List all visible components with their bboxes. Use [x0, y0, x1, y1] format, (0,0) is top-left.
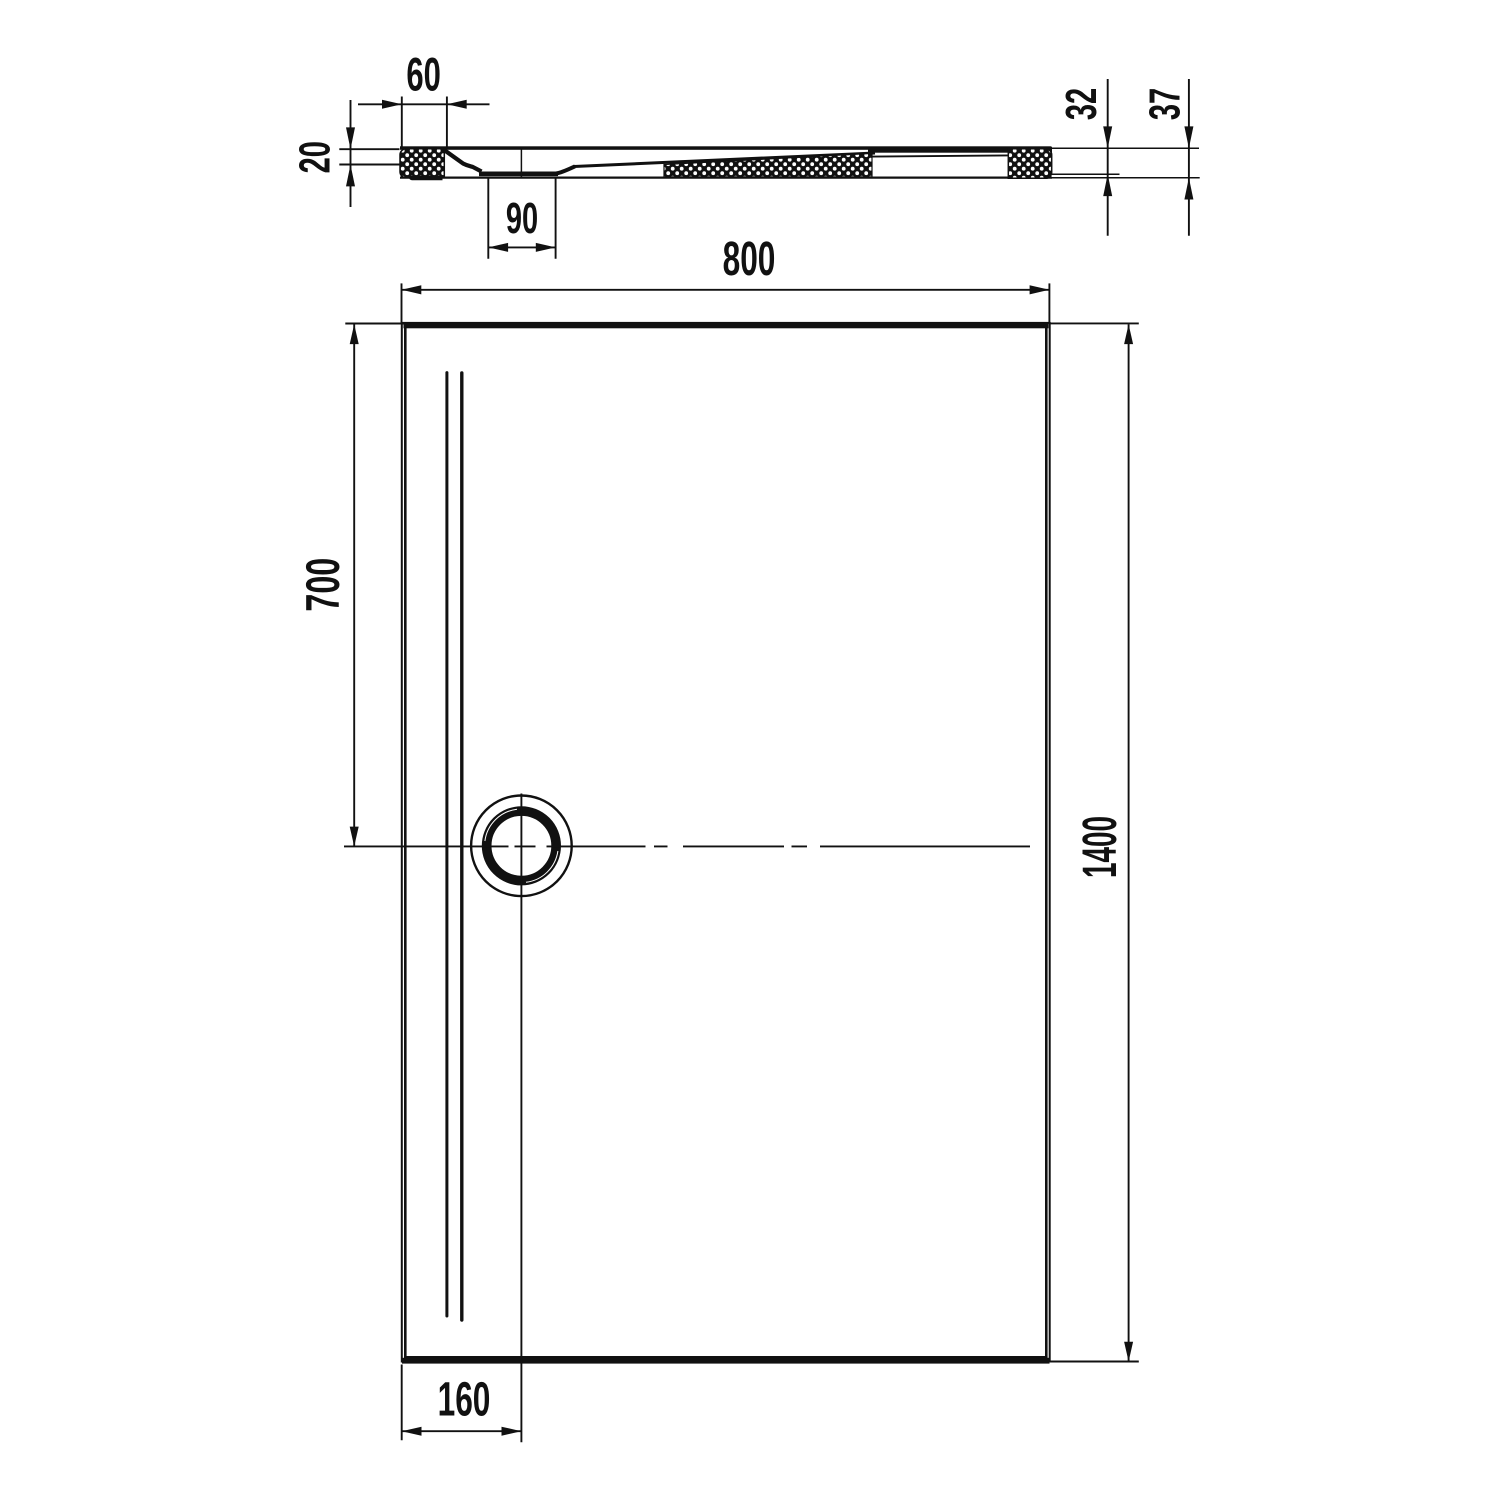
svg-text:20: 20 — [289, 141, 339, 173]
svg-text:160: 160 — [438, 1372, 491, 1426]
svg-text:1400: 1400 — [1073, 816, 1127, 878]
svg-text:90: 90 — [506, 193, 538, 243]
svg-text:37: 37 — [1140, 88, 1190, 120]
svg-text:32: 32 — [1056, 88, 1106, 120]
svg-text:800: 800 — [723, 231, 776, 285]
svg-text:700: 700 — [296, 558, 350, 612]
svg-text:60: 60 — [406, 49, 440, 101]
